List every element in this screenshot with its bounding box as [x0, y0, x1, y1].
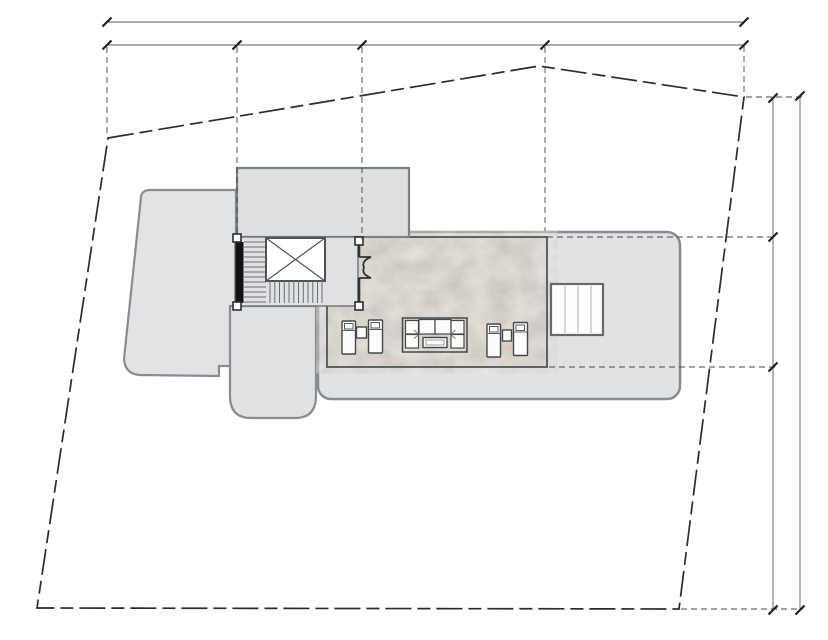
roof-left: [124, 190, 236, 376]
roof-upper-block: [237, 168, 409, 237]
column-post-stair-top: [233, 234, 241, 242]
column-post-door-bottom: [355, 302, 363, 310]
dimension-ticks-right: [769, 92, 805, 615]
stair-side-wall: [236, 242, 244, 303]
side-table-2: [503, 330, 512, 341]
lounger-3-pillow: [487, 327, 501, 334]
skylight: [551, 284, 603, 335]
sofa-module-seat-1: [419, 320, 435, 335]
plan-svg: [0, 0, 828, 640]
floor-plan-page: [0, 0, 828, 640]
coffee-table: [423, 338, 447, 348]
column-post-stair-bottom: [233, 302, 241, 310]
lounger-1-pillow: [342, 324, 356, 331]
sofa-module-seat-2: [435, 320, 451, 335]
side-table-1: [357, 327, 367, 338]
roof-annex-wing: [230, 306, 316, 418]
